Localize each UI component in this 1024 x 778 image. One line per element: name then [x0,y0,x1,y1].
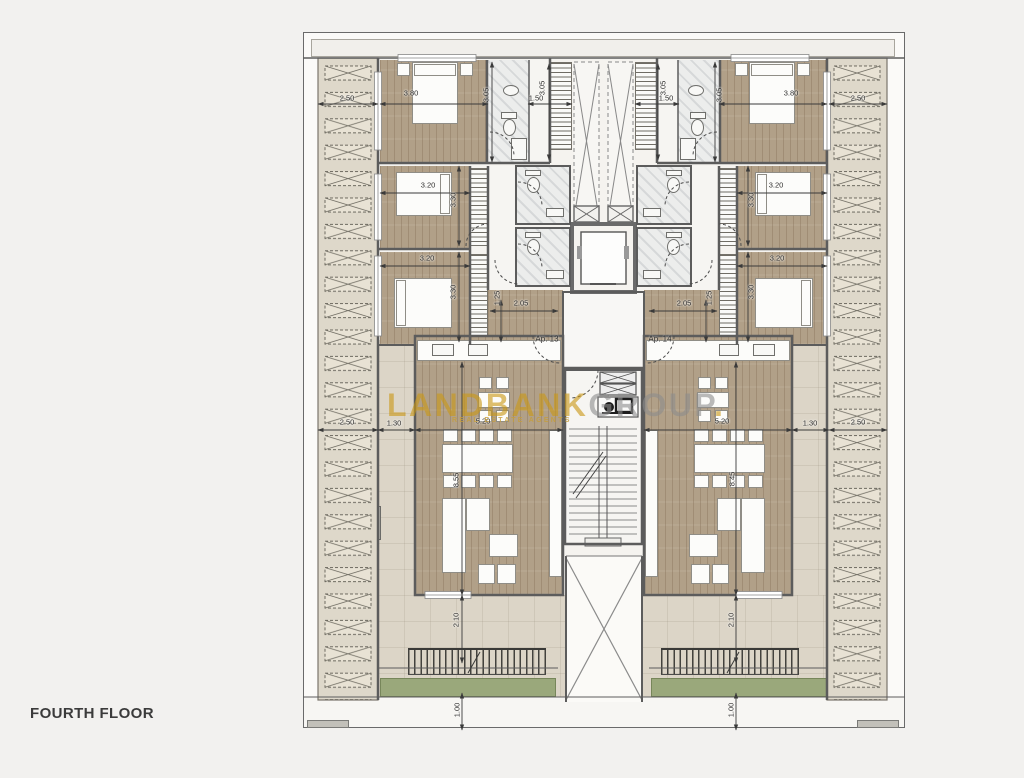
bed-pillow [751,64,793,76]
chair [712,475,727,488]
column [373,506,381,540]
toilet-tank [525,170,541,176]
pouf [712,564,729,584]
chair [479,475,494,488]
pouf [478,564,495,584]
bed-pillow [757,174,767,214]
nightstand [460,63,473,76]
dimension-label: 3.20 [770,254,785,263]
chair [497,475,512,488]
sofa [717,498,741,531]
wardrobe-b-right [719,168,737,246]
corridor-right [691,166,719,290]
dimension-label: 2.05 [514,299,529,308]
lower-shaft [566,556,642,702]
dimension-label: 2.10 [727,613,736,628]
sofa [741,498,765,573]
column [826,506,834,540]
floor-title: FOURTH FLOOR [30,705,154,722]
wardrobe-top-left [550,62,572,150]
sink [503,85,519,96]
tv-unit [549,430,562,577]
chair [730,429,745,442]
wardrobe-c-right [719,254,737,342]
dimension-label: 3.30 [449,193,458,208]
chair [497,429,512,442]
dimension-label: 2.50 [340,94,355,103]
dimension-label: 1.30 [803,419,818,428]
toilet-tank [525,232,541,238]
toilet-tank [666,232,682,238]
pouf [497,564,516,584]
nightstand [797,63,810,76]
sink [688,85,704,96]
dimension-label: 2.50 [340,418,355,427]
shower [511,138,527,160]
lobby [563,292,644,370]
watermark-secondary: GROUP [588,387,714,423]
nightstand [735,63,748,76]
dimension-label: 3.80 [404,89,419,98]
dimension-label: 3.30 [747,193,756,208]
dimension-label: 3.05 [659,81,668,96]
pouf [691,564,710,584]
toilet-tank [690,112,706,119]
watermark-tagline: REAL ESTATE AGENTS [452,417,572,424]
chair [461,475,476,488]
kitchen-sink [432,344,454,356]
sink [546,270,564,279]
tv-unit [645,430,658,577]
dimension-label: 2.50 [851,418,866,427]
bed-pillow [396,280,406,326]
floor-plan-canvas: 2.503.801.501.503.802.503.203.203.203.20… [0,0,1024,778]
coffee-table [689,534,718,557]
sofa [466,498,490,531]
dimension-label: 2.05 [677,299,692,308]
toilet [527,239,540,255]
apartment-label-13: Ap. 13 [535,335,558,344]
roof-band [311,39,895,57]
dining-table [694,444,765,473]
bed-pillow [414,64,456,76]
toilet [691,119,704,136]
planter-right [651,678,827,697]
shower [680,138,696,160]
corner-block [857,720,899,728]
sink [643,270,661,279]
nightstand [397,63,410,76]
coffee-table [489,534,518,557]
chair [748,475,763,488]
toilet-tank [501,112,517,119]
dimension-label: 1.25 [705,291,714,306]
dimension-label: 3.30 [449,285,458,300]
watermark-dot: . [714,387,725,423]
corridor-left [488,166,516,290]
toilet [527,177,540,193]
stove [468,344,488,356]
bed-pillow [801,280,811,326]
chair [479,429,494,442]
stove [719,344,739,356]
dimension-label: 2.10 [452,613,461,628]
dimension-label: 3.05 [715,88,724,103]
dimension-label: 2.50 [851,94,866,103]
toilet [503,119,516,136]
corner-block [307,720,349,728]
dimension-label: 3.05 [538,81,547,96]
wardrobe-top-right [635,62,657,150]
chair [461,429,476,442]
dimension-label: 3.20 [421,181,436,190]
chair [694,429,709,442]
dimension-label: 3.30 [747,285,756,300]
dimension-label: 1.00 [727,703,736,718]
wardrobe-b-left [470,168,488,246]
chair [712,429,727,442]
dressing-left [529,60,550,163]
wardrobe-c-left [470,254,488,342]
pergola-left [408,648,546,675]
kitchen-sink [753,344,775,356]
toilet [667,177,680,193]
dimension-label: 8.55 [452,473,461,488]
dimension-label: 3.05 [482,88,491,103]
dimension-label: 1.25 [493,291,502,306]
sink [643,208,661,217]
planter-left [380,678,556,697]
dining-table [442,444,513,473]
chair [443,429,458,442]
toilet [667,239,680,255]
sink [546,208,564,217]
pergola-right [661,648,799,675]
dimension-label: 3.20 [420,254,435,263]
dimension-label: 3.20 [769,181,784,190]
dressing-right [657,60,678,163]
sofa [442,498,466,573]
dimension-label: 1.00 [453,703,462,718]
dimension-label: 3.80 [784,89,799,98]
chair [748,429,763,442]
toilet-tank [666,170,682,176]
dimension-label: 8.45 [728,472,737,487]
apartment-label-14: Ap. 14 [648,335,671,344]
chair [694,475,709,488]
